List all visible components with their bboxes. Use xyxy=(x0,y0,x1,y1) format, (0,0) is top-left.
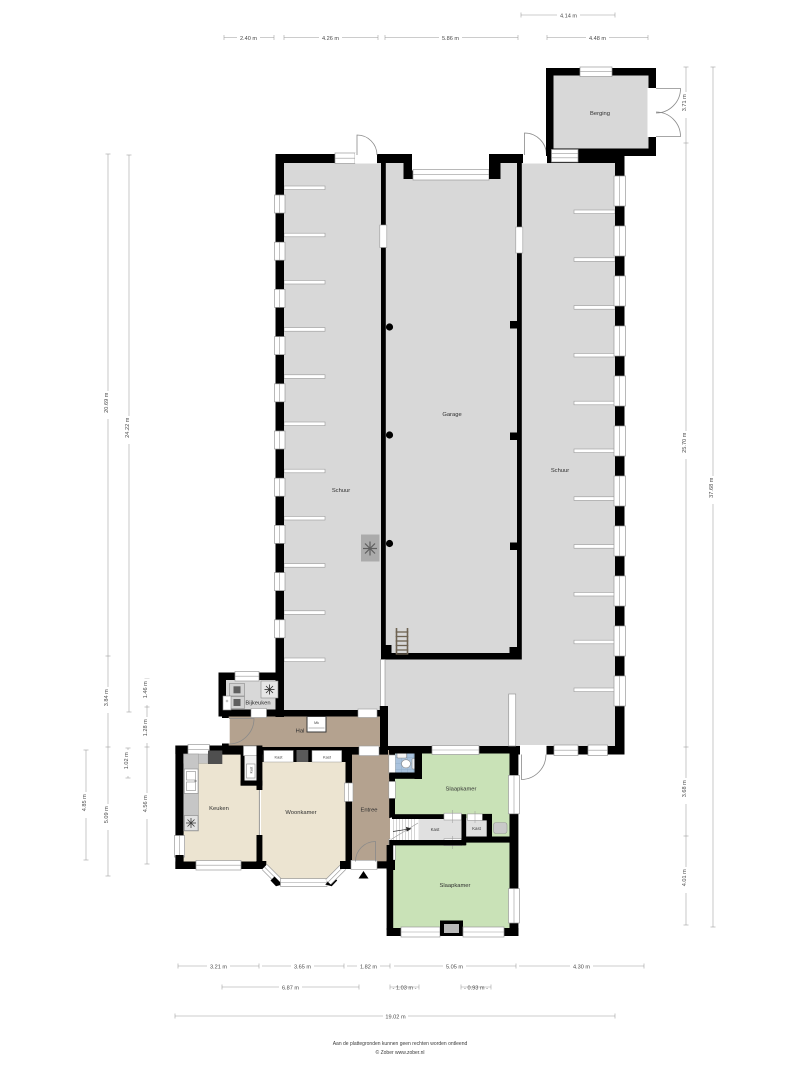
svg-text:Entree: Entree xyxy=(360,808,377,814)
svg-text:Keuken: Keuken xyxy=(209,806,229,812)
svg-text:37.68 m: 37.68 m xyxy=(709,477,715,498)
svg-text:Kast: Kast xyxy=(250,767,254,774)
svg-text:2.40 m: 2.40 m xyxy=(240,36,257,42)
svg-text:1.82 m: 1.82 m xyxy=(360,964,377,970)
svg-text:4.14 m: 4.14 m xyxy=(560,13,577,19)
svg-text:Bijkeuken: Bijkeuken xyxy=(245,701,270,707)
svg-text:4.01 m: 4.01 m xyxy=(682,869,688,886)
svg-text:Schuur: Schuur xyxy=(551,468,569,474)
svg-text:Kast: Kast xyxy=(431,827,441,832)
svg-text:24.22 m: 24.22 m xyxy=(125,417,131,438)
svg-text:3.68 m: 3.68 m xyxy=(682,780,688,797)
svg-text:3.65 m: 3.65 m xyxy=(294,964,311,970)
svg-text:3.71 m: 3.71 m xyxy=(682,94,688,111)
svg-text:© Zober www.zober.nl: © Zober www.zober.nl xyxy=(376,1049,425,1056)
svg-text:Slaapkamer: Slaapkamer xyxy=(446,787,477,793)
svg-text:4.48 m: 4.48 m xyxy=(589,36,606,42)
svg-text:4.85 m: 4.85 m xyxy=(82,794,88,811)
svg-text:Schuur: Schuur xyxy=(332,488,350,494)
svg-text:1.02 m: 1.02 m xyxy=(124,752,130,769)
svg-text:Slaapkamer: Slaapkamer xyxy=(440,883,471,889)
svg-text:4.26 m: 4.26 m xyxy=(322,36,339,42)
svg-text:1.28 m: 1.28 m xyxy=(143,719,149,736)
svg-text:5.09 m: 5.09 m xyxy=(104,806,110,823)
svg-text:25.70 m: 25.70 m xyxy=(682,432,688,453)
svg-text:Kast: Kast xyxy=(472,826,482,831)
svg-text:- 0.93 m -: - 0.93 m - xyxy=(464,985,488,991)
svg-text:Mk: Mk xyxy=(314,721,319,725)
svg-text:3.84 m: 3.84 m xyxy=(104,689,110,706)
svg-text:Kast: Kast xyxy=(323,755,332,760)
svg-text:Aan de plattegronden kunnen ge: Aan de plattegronden kunnen geen rechten… xyxy=(333,1041,468,1047)
svg-text:3.21 m: 3.21 m xyxy=(210,964,227,970)
svg-text:Berging: Berging xyxy=(590,111,610,117)
svg-text:19.02 m: 19.02 m xyxy=(385,1014,406,1020)
svg-text:20.69 m: 20.69 m xyxy=(104,392,110,413)
svg-text:1.46 m: 1.46 m xyxy=(143,681,149,698)
svg-text:4.30 m: 4.30 m xyxy=(573,964,590,970)
svg-text:4.56 m: 4.56 m xyxy=(143,795,149,812)
svg-text:6.87 m: 6.87 m xyxy=(282,985,299,991)
svg-text:5.05 m: 5.05 m xyxy=(446,964,463,970)
svg-text:Woonkamer: Woonkamer xyxy=(285,810,316,816)
svg-text:5.86 m: 5.86 m xyxy=(442,36,459,42)
svg-text:- 1.03 m -: - 1.03 m - xyxy=(393,985,417,991)
svg-text:Garage: Garage xyxy=(442,412,461,418)
svg-text:Hal: Hal xyxy=(296,729,305,735)
svg-text:Kast: Kast xyxy=(274,755,283,760)
